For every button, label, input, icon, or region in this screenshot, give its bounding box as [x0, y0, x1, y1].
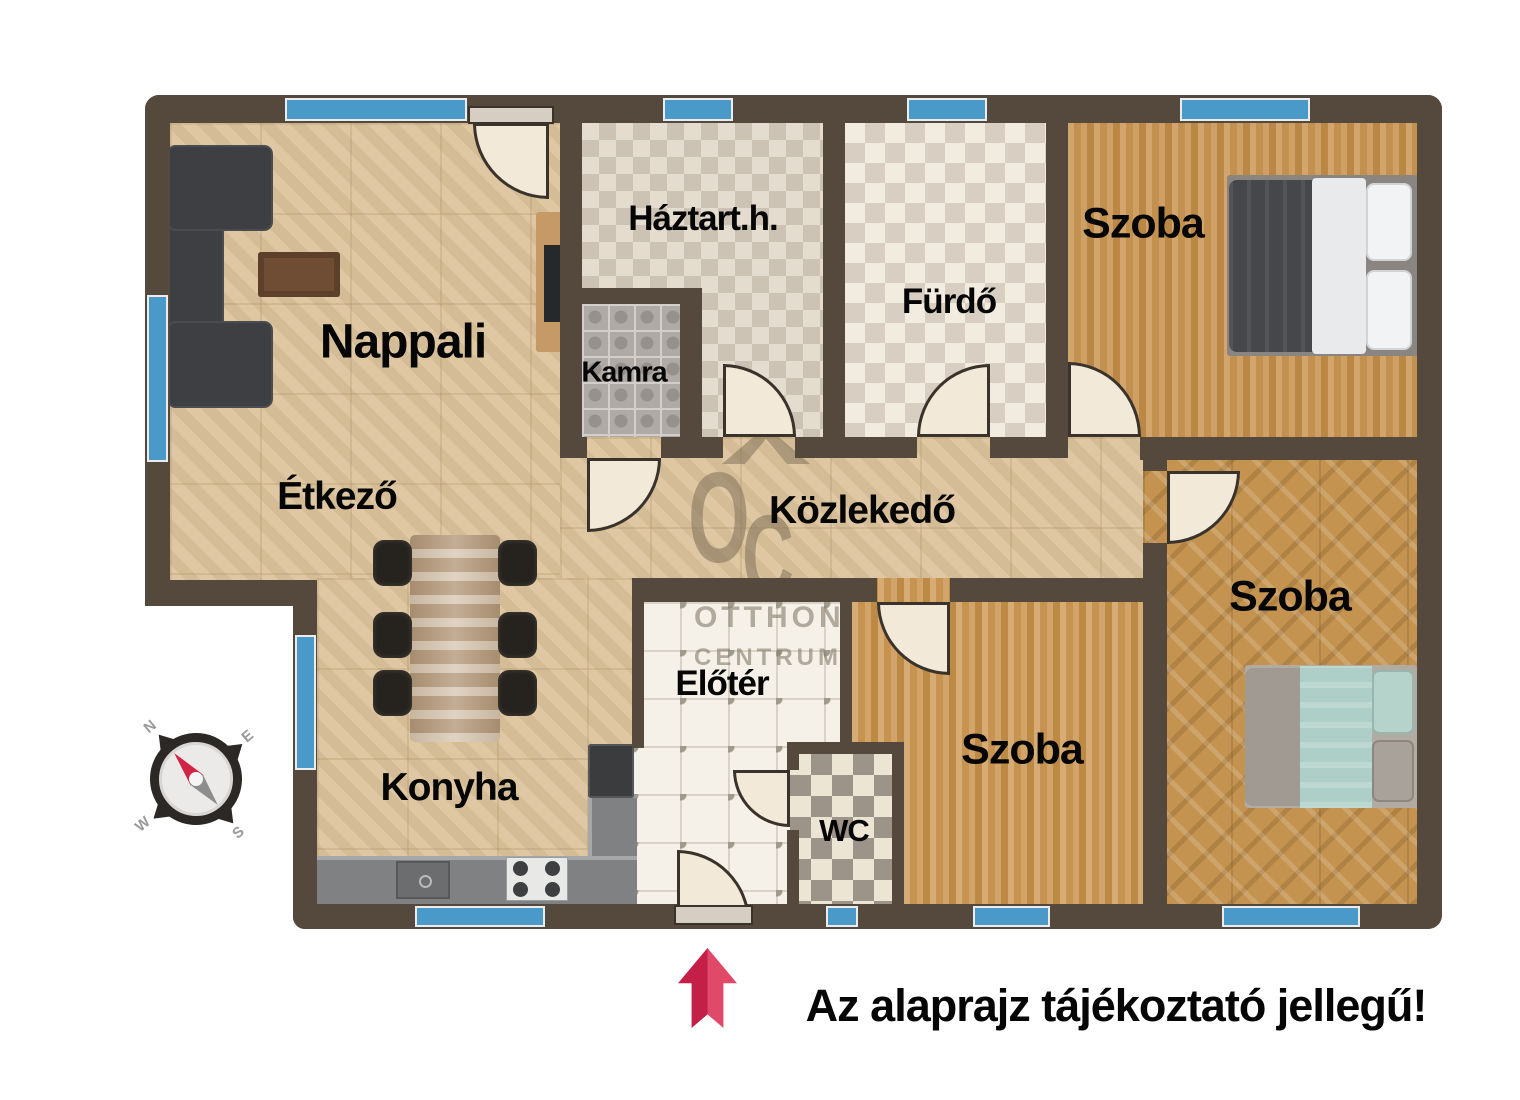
disclaimer-text: Az alaprajz tájékoztató jellegű! [806, 980, 1427, 1032]
wall-szoba-kozepso-top [950, 578, 1143, 602]
sink-faucet [419, 875, 432, 888]
window [973, 906, 1050, 927]
dining-chair [498, 612, 537, 658]
wall-szoba-jobb-left [1143, 543, 1167, 929]
room-konyha-label: Konyha [380, 766, 517, 810]
dining-chair [498, 540, 537, 586]
floorplan-page: O C OTTHON CENTRUM [0, 0, 1520, 1100]
wall-eloter-left [632, 598, 644, 748]
wall-szoba-divider [1140, 437, 1417, 460]
bed-top-pillow [1366, 183, 1412, 261]
coffee-table [258, 252, 340, 297]
compass-label-w: W [132, 813, 154, 835]
room-kamra-label: Kamra [581, 357, 666, 390]
tv-screen [544, 245, 561, 322]
wall-notch [145, 580, 317, 606]
wall-hall-top [795, 437, 917, 458]
watermark-line1: OTTHON [694, 601, 845, 635]
stove-burner [513, 882, 528, 897]
room-szoba-jobb-label: Szoba [1229, 573, 1351, 622]
wall-hall-top [560, 437, 587, 458]
wall-wc-left [787, 830, 799, 904]
room-szoba-felso-label: Szoba [1082, 200, 1204, 249]
watermark-monogram-o: O [688, 455, 750, 583]
window [907, 98, 987, 121]
fridge [588, 744, 634, 798]
dining-chair [373, 670, 412, 716]
compass-label-e: E [238, 727, 257, 746]
compass-icon: N E S W [111, 694, 280, 863]
wall-furdo-szoba [1046, 123, 1068, 458]
window [415, 906, 545, 927]
wall-hall-top [661, 437, 723, 458]
window [1180, 98, 1310, 121]
dining-chair [373, 540, 412, 586]
entrance-door-leaf [674, 905, 753, 925]
window [663, 98, 733, 121]
bed-right-duvet [1300, 666, 1372, 808]
room-haztartasi-label: Háztart.h. [628, 199, 777, 239]
bed-top-pillow [1366, 270, 1412, 350]
compass-label-n: N [141, 717, 160, 737]
entrance-arrow-icon [678, 948, 737, 1028]
compass-label-s: S [229, 823, 248, 842]
room-etkezo-label: Étkező [277, 475, 397, 519]
room-eloter-label: Előtér [675, 664, 768, 704]
bed-top-blanket [1229, 180, 1317, 352]
window [295, 635, 316, 770]
window [1222, 906, 1360, 927]
dining-chair [498, 670, 537, 716]
wall-kamra-right [680, 288, 702, 458]
stove-burner [513, 861, 528, 876]
bed-right-pillow [1372, 740, 1414, 802]
dining-table [410, 535, 500, 742]
wall-wc-left [787, 742, 799, 770]
room-furdo-label: Fürdő [902, 282, 996, 322]
wall-szoba-jobb-left [1143, 458, 1167, 471]
wall-haztartasi-furdo [823, 123, 845, 444]
kitchen-counter-arm [588, 798, 637, 856]
stove-burner [545, 882, 560, 897]
dining-chair [373, 612, 412, 658]
bed-right-pillow [1372, 670, 1414, 734]
room-kozlekedo-label: Közlekedő [769, 489, 955, 533]
wall-hall-top [990, 437, 1046, 458]
wall-eloter-right [840, 598, 852, 746]
sofa-bottom-arm [167, 321, 273, 408]
window [285, 98, 467, 121]
wall-right [1417, 95, 1442, 929]
sofa-top-arm [167, 145, 273, 231]
room-wc-label: WC [819, 813, 869, 849]
room-nappali-label: Nappali [320, 315, 486, 370]
kitchen-counter [317, 856, 637, 904]
door-leaf [468, 106, 554, 124]
wall-wc-top [787, 742, 904, 754]
room-szoba-kozepso-label: Szoba [961, 726, 1083, 775]
window [826, 906, 858, 927]
wall-wc-right [892, 742, 904, 904]
window [147, 295, 168, 462]
bed-top-duvet [1312, 178, 1366, 354]
stove-burner [545, 861, 560, 876]
